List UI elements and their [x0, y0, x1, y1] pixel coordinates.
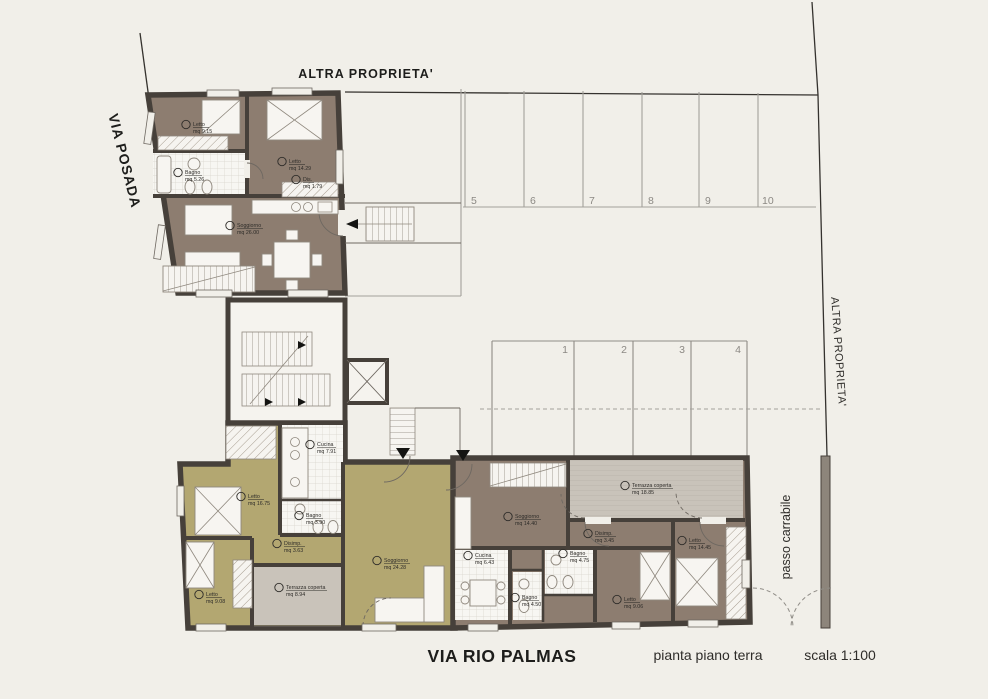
street-label-via-posada: VIA POSADA [105, 112, 144, 210]
svg-text:mq 3.45: mq 3.45 [595, 538, 614, 544]
svg-text:Disimp.: Disimp. [595, 531, 613, 537]
wardrobe [233, 560, 252, 608]
entry-arrow-left [346, 219, 358, 229]
parking-stall-8: 8 [648, 195, 654, 207]
parking-stall-10: 10 [762, 195, 774, 207]
bed-single [640, 552, 670, 600]
svg-text:Terrazza coperta: Terrazza coperta [632, 483, 672, 489]
scale-label: scala 1:100 [804, 647, 876, 663]
svg-text:mq 9.08: mq 9.08 [206, 599, 225, 605]
svg-text:mq 5.26: mq 5.26 [185, 177, 204, 183]
kitchen-fixtures [282, 428, 308, 498]
parking-stall-5: 5 [471, 195, 477, 207]
svg-text:mq 14.45: mq 14.45 [689, 545, 711, 551]
svg-text:Soggiorno: Soggiorno [515, 514, 539, 520]
street-label-via-rio-palmas: VIA RIO PALMAS [428, 646, 577, 666]
wardrobe [226, 426, 276, 459]
sofa [375, 598, 427, 622]
sofa [455, 497, 471, 549]
svg-text:Terrazza coperta: Terrazza coperta [286, 585, 326, 591]
bed-single [186, 542, 214, 588]
svg-text:mq 4.75: mq 4.75 [570, 558, 589, 564]
elevator [347, 360, 387, 403]
sofa [185, 205, 232, 235]
svg-text:mq 3.63: mq 3.63 [284, 548, 303, 554]
boundary-line-top [345, 92, 818, 95]
kitchen-counter [252, 200, 338, 214]
svg-text:mq 14.29: mq 14.29 [289, 166, 311, 172]
svg-text:mq 7.91: mq 7.91 [317, 449, 336, 455]
svg-text:mq 24.28: mq 24.28 [384, 565, 406, 571]
svg-text:Letto: Letto [206, 592, 218, 598]
boundary-label-right: ALTRA PROPRIETA' [828, 297, 848, 408]
driveway-label: passo carrabile [779, 495, 793, 580]
drawing-title: pianta piano terra [654, 647, 763, 663]
gate-arc-left [753, 588, 793, 628]
parking-stall-2: 2 [621, 344, 627, 356]
parking-stall-9: 9 [705, 195, 711, 207]
svg-text:mq 4.50: mq 4.50 [522, 602, 541, 608]
svg-text:Bagno: Bagno [185, 170, 200, 176]
parking-stall-1: 1 [562, 344, 568, 356]
svg-text:Letto: Letto [193, 122, 205, 128]
svg-text:Soggiorno: Soggiorno [384, 558, 408, 564]
svg-text:Dis.: Dis. [303, 177, 312, 183]
svg-text:Letto: Letto [289, 159, 301, 165]
boundary-wall-right [821, 456, 830, 628]
svg-text:mq 18.85: mq 18.85 [632, 490, 654, 496]
floor-plan: 5 6 7 8 9 10 1 2 3 4 [0, 0, 988, 699]
apartment-upper [144, 88, 347, 297]
side-stair [390, 408, 415, 459]
svg-text:Letto: Letto [689, 538, 701, 544]
boundary-label-top: ALTRA PROPRIETA' [298, 67, 433, 81]
svg-text:mq 9.06: mq 9.06 [624, 604, 643, 610]
svg-text:mq 9.15: mq 9.15 [193, 129, 212, 135]
svg-text:mq 14.40: mq 14.40 [515, 521, 537, 527]
svg-text:mq 1.79: mq 1.79 [303, 184, 322, 190]
svg-text:Disimp.: Disimp. [284, 541, 302, 547]
bed-double [195, 487, 241, 535]
svg-text:Bagno: Bagno [570, 551, 585, 557]
bed-double [267, 100, 322, 140]
svg-text:mq 16.75: mq 16.75 [248, 501, 270, 507]
terrace-floor [568, 460, 743, 518]
parking-stall-7: 7 [589, 195, 595, 207]
parking-stall-4: 4 [735, 344, 741, 356]
parking-middle: 1 2 3 4 [480, 341, 821, 460]
svg-text:Letto: Letto [624, 597, 636, 603]
internal-stair [490, 463, 566, 487]
svg-text:Cucina: Cucina [317, 442, 334, 448]
floor-plan-page: 5 6 7 8 9 10 1 2 3 4 [0, 0, 988, 699]
parking-top: 5 6 7 8 9 10 [345, 89, 816, 296]
boundary-line-right [812, 2, 827, 456]
internal-stair [163, 266, 255, 292]
svg-text:Letto: Letto [248, 494, 260, 500]
svg-text:mq 3.90: mq 3.90 [306, 520, 325, 526]
svg-text:Bagno: Bagno [522, 595, 537, 601]
svg-text:mq 26.00: mq 26.00 [237, 230, 259, 236]
sofa [424, 566, 444, 622]
svg-text:Bagno: Bagno [306, 513, 321, 519]
svg-text:Cucina: Cucina [475, 553, 492, 559]
wardrobe [158, 136, 228, 150]
parking-stall-6: 6 [530, 195, 536, 207]
svg-text:mq 8.94: mq 8.94 [286, 592, 305, 598]
bed-double [676, 558, 718, 606]
parking-stall-3: 3 [679, 344, 685, 356]
boundary-line-topleft [140, 33, 149, 99]
svg-text:Soggiorno: Soggiorno [237, 223, 261, 229]
svg-text:mq 6.43: mq 6.43 [475, 560, 494, 566]
entry-corridor-upper [345, 203, 461, 243]
